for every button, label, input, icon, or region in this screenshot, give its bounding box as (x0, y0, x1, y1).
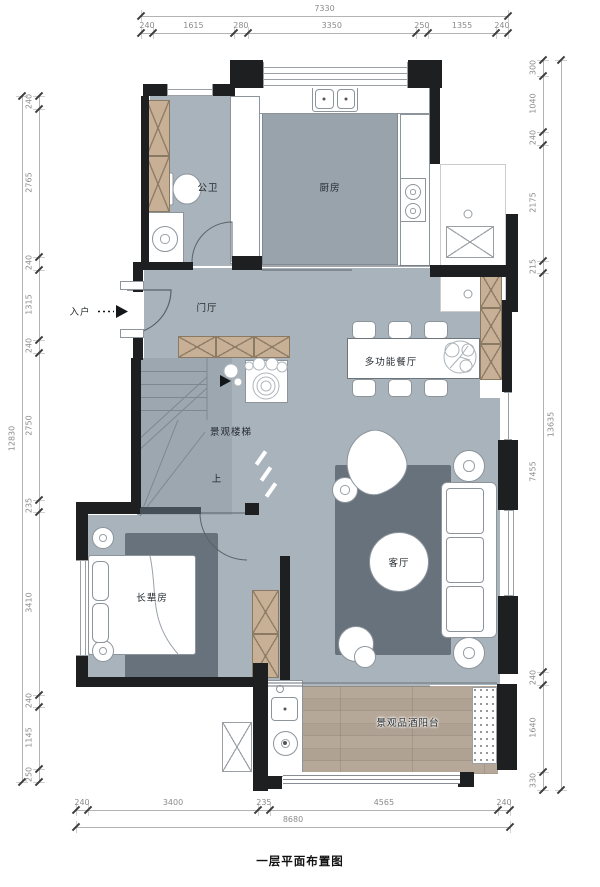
dim-label: 250 (25, 755, 34, 795)
label-kitchen: 厨房 (319, 180, 340, 194)
wall (232, 256, 262, 270)
planter-box (472, 687, 497, 764)
label-dining: 多功能餐厅 (365, 354, 418, 368)
window-bathroom (167, 84, 213, 96)
dim-label: 1145 (25, 718, 34, 758)
shoe-cabinet-1 (178, 336, 216, 358)
sofa-cushion (446, 586, 484, 632)
dim-label: 2750 (25, 406, 34, 446)
wall (430, 88, 440, 164)
sofa-cushion (446, 537, 484, 583)
corner-table-bottom (453, 637, 485, 669)
dim-line (141, 33, 508, 34)
label-living: 客厅 (388, 555, 409, 569)
balcony-railing (283, 772, 460, 784)
wardrobe-1 (252, 590, 279, 634)
label-bedroom: 长辈房 (136, 590, 168, 604)
wall (408, 60, 442, 88)
dim-line (76, 827, 510, 828)
dim-label: 235 (246, 798, 282, 807)
floor-plan-canvas: 公卫 厨房 门厅 多功能餐厅 景观楼梯 上 客厅 长辈房 景观品酒阳台 入户 一… (0, 0, 600, 887)
dim-label: 240 (129, 21, 165, 30)
dining-cabinet-3 (480, 344, 502, 380)
dim-label: 240 (486, 798, 522, 807)
balcony-laundry-unit (266, 680, 303, 777)
sofa-cushion (446, 488, 484, 534)
label-foyer: 门厅 (196, 300, 217, 314)
shoe-cabinet-2 (216, 336, 254, 358)
dim-label: 4565 (366, 798, 402, 807)
wall (141, 96, 149, 268)
dim-line (561, 60, 562, 790)
wall (497, 684, 517, 770)
dim-label: 8680 (275, 815, 311, 824)
zen-garden-box (245, 360, 288, 403)
dining-chair (352, 321, 376, 339)
dim-label: 240 (529, 118, 538, 158)
dim-label: 7330 (307, 4, 343, 13)
label-balcony: 景观品酒阳台 (376, 715, 439, 729)
window-living (504, 510, 514, 596)
dim-label: 235 (25, 485, 34, 525)
faucet-icon (276, 685, 284, 693)
wall (266, 776, 282, 789)
dim-label: 1640 (529, 708, 538, 748)
washer-icon (152, 226, 178, 252)
dim-line (39, 96, 40, 782)
window-kitchen (263, 62, 408, 88)
dim-label: 240 (25, 326, 34, 366)
ac-unit-bottom (222, 722, 252, 772)
sink-basin-left (315, 89, 334, 109)
wall (498, 596, 518, 674)
dim-label: 280 (223, 21, 259, 30)
wall (498, 440, 518, 510)
dim-label: 3400 (155, 798, 191, 807)
shoe-cabinet-3 (254, 336, 290, 358)
dim-label: 240 (25, 82, 34, 122)
wall-interior (137, 507, 201, 514)
wall (131, 358, 141, 508)
dim-label: 240 (529, 658, 538, 698)
pouf-small (354, 646, 376, 668)
wall (253, 663, 268, 791)
dim-label: 300 (529, 48, 538, 88)
entry-arrow-icon (116, 305, 128, 318)
dim-line (141, 16, 508, 17)
dim-label: 1315 (25, 284, 34, 324)
bath-cabinet-1 (146, 100, 170, 156)
dim-label: 240 (64, 798, 100, 807)
dim-label: 12830 (8, 419, 17, 459)
label-stairs-up: 上 (212, 471, 223, 485)
sink-basin-right (337, 89, 355, 109)
label-stairs: 景观楼梯 (210, 424, 252, 438)
dim-line (22, 96, 23, 782)
bedside-lamp-bottom (92, 640, 114, 662)
wall (458, 772, 474, 787)
wall (502, 300, 512, 392)
dim-label: 1355 (444, 21, 480, 30)
stove-burner-1 (405, 184, 421, 200)
wall (76, 677, 255, 687)
dining-chair (424, 379, 448, 397)
dim-label: 240 (25, 680, 34, 720)
dim-label: 1615 (175, 21, 211, 30)
bath-cabinet-2 (146, 156, 170, 212)
dining-chair (388, 379, 412, 397)
dim-label: 3350 (314, 21, 350, 30)
dining-cabinet-2 (480, 308, 502, 344)
balcony-sink (271, 697, 298, 721)
balcony-washer (273, 731, 298, 756)
wall (143, 84, 167, 96)
label-bathroom: 公卫 (197, 180, 218, 194)
bedside-lamp-top (92, 527, 114, 549)
wall (141, 262, 193, 270)
window-dining (504, 392, 512, 440)
dim-label: 13635 (547, 405, 556, 445)
wall (280, 556, 290, 680)
kitchen-tall-cabinet (230, 96, 260, 264)
label-entry: 入户 (69, 304, 90, 318)
wall (245, 503, 259, 515)
wall (76, 510, 88, 560)
door-jamb-top (120, 281, 144, 290)
door-jamb-bottom (120, 329, 144, 338)
dining-chair (424, 321, 448, 339)
wall (430, 265, 508, 277)
corner-table-top (453, 450, 485, 482)
dining-cabinet-1 (480, 272, 502, 308)
pillow (92, 561, 109, 601)
pillow (92, 603, 109, 643)
dining-chair (388, 321, 412, 339)
wall (230, 60, 263, 88)
dim-label: 240 (484, 21, 520, 30)
dim-line (76, 810, 510, 811)
dim-label: 2765 (25, 162, 34, 202)
stove-burner-2 (405, 203, 421, 219)
plan-caption: 一层平面布置图 (256, 853, 344, 869)
dim-label: 330 (529, 761, 538, 801)
dim-label: 250 (404, 21, 440, 30)
dim-label: 240 (25, 243, 34, 283)
window-bedroom (76, 560, 88, 656)
dim-label: 215 (529, 246, 538, 286)
dim-label: 2175 (529, 182, 538, 222)
dim-label: 3410 (25, 583, 34, 623)
wall (506, 214, 518, 312)
dim-line (543, 60, 544, 790)
dining-chair (352, 379, 376, 397)
dim-label: 7455 (529, 452, 538, 492)
stair-treads (139, 359, 207, 416)
ac-unit-right (446, 226, 494, 258)
